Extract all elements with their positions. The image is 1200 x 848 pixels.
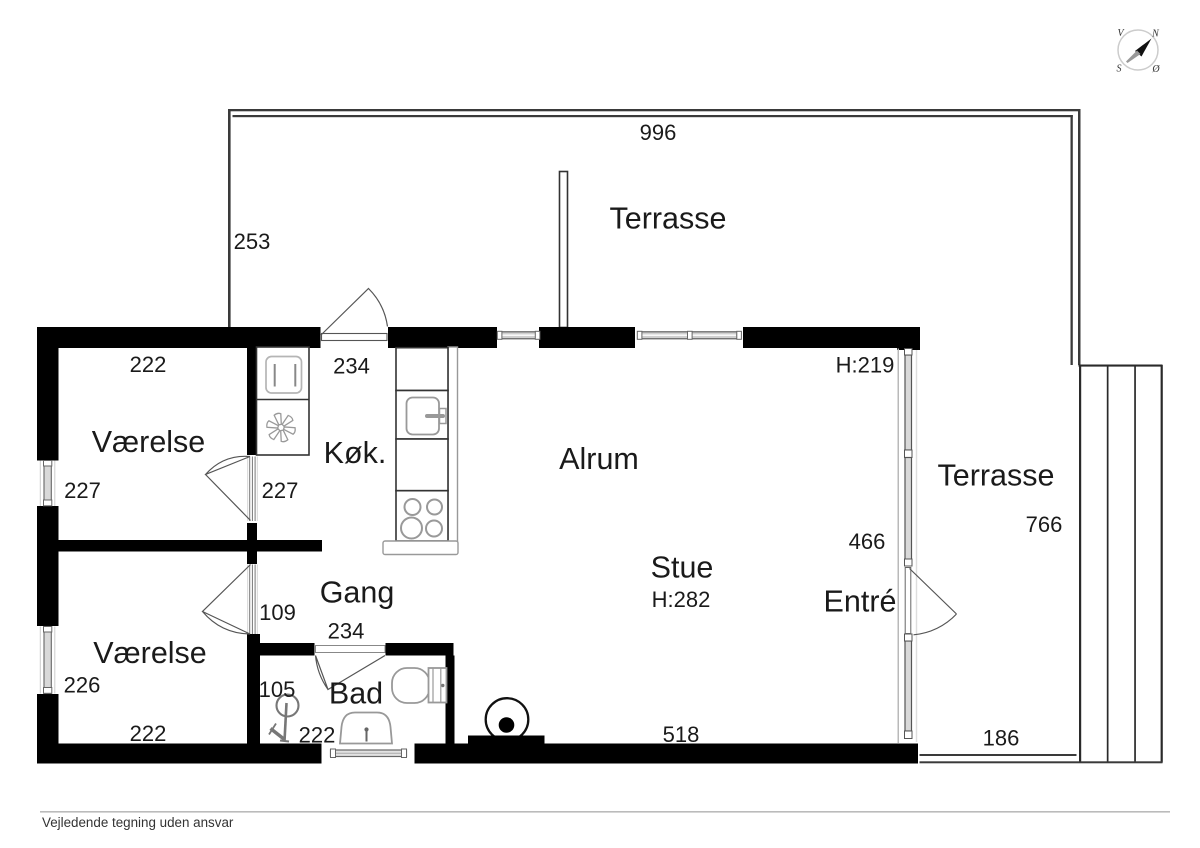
svg-text:226: 226	[64, 673, 101, 698]
svg-text:466: 466	[849, 529, 886, 554]
svg-text:234: 234	[328, 619, 365, 644]
svg-text:234: 234	[333, 354, 370, 379]
svg-text:518: 518	[663, 722, 700, 747]
svg-text:Gang: Gang	[320, 575, 395, 609]
svg-text:H:282: H:282	[652, 587, 711, 612]
svg-text:Vejledende tegning uden ansvar: Vejledende tegning uden ansvar	[42, 815, 234, 830]
svg-text:222: 222	[130, 352, 167, 377]
svg-text:766: 766	[1026, 512, 1063, 537]
svg-text:Terrasse: Terrasse	[610, 201, 727, 235]
svg-text:227: 227	[64, 478, 101, 503]
svg-text:Entré: Entré	[824, 585, 897, 619]
svg-text:222: 222	[130, 721, 167, 746]
svg-text:Terrasse: Terrasse	[938, 458, 1055, 492]
svg-text:Værelse: Værelse	[93, 636, 207, 670]
svg-text:Køk.: Køk.	[324, 436, 387, 470]
svg-text:Alrum: Alrum	[559, 442, 639, 476]
svg-text:109: 109	[259, 600, 296, 625]
svg-text:Bad: Bad	[329, 677, 383, 711]
svg-text:222: 222	[299, 723, 336, 748]
svg-text:S: S	[1117, 64, 1122, 75]
svg-text:N: N	[1151, 29, 1160, 40]
svg-text:Værelse: Værelse	[92, 425, 206, 459]
svg-text:996: 996	[640, 120, 677, 145]
svg-text:253: 253	[234, 229, 271, 254]
svg-text:Ø: Ø	[1151, 64, 1160, 75]
svg-text:Stue: Stue	[651, 551, 714, 585]
svg-text:186: 186	[983, 726, 1020, 751]
svg-text:105: 105	[259, 677, 296, 702]
svg-text:227: 227	[262, 478, 299, 503]
svg-text:H:219: H:219	[836, 353, 895, 378]
